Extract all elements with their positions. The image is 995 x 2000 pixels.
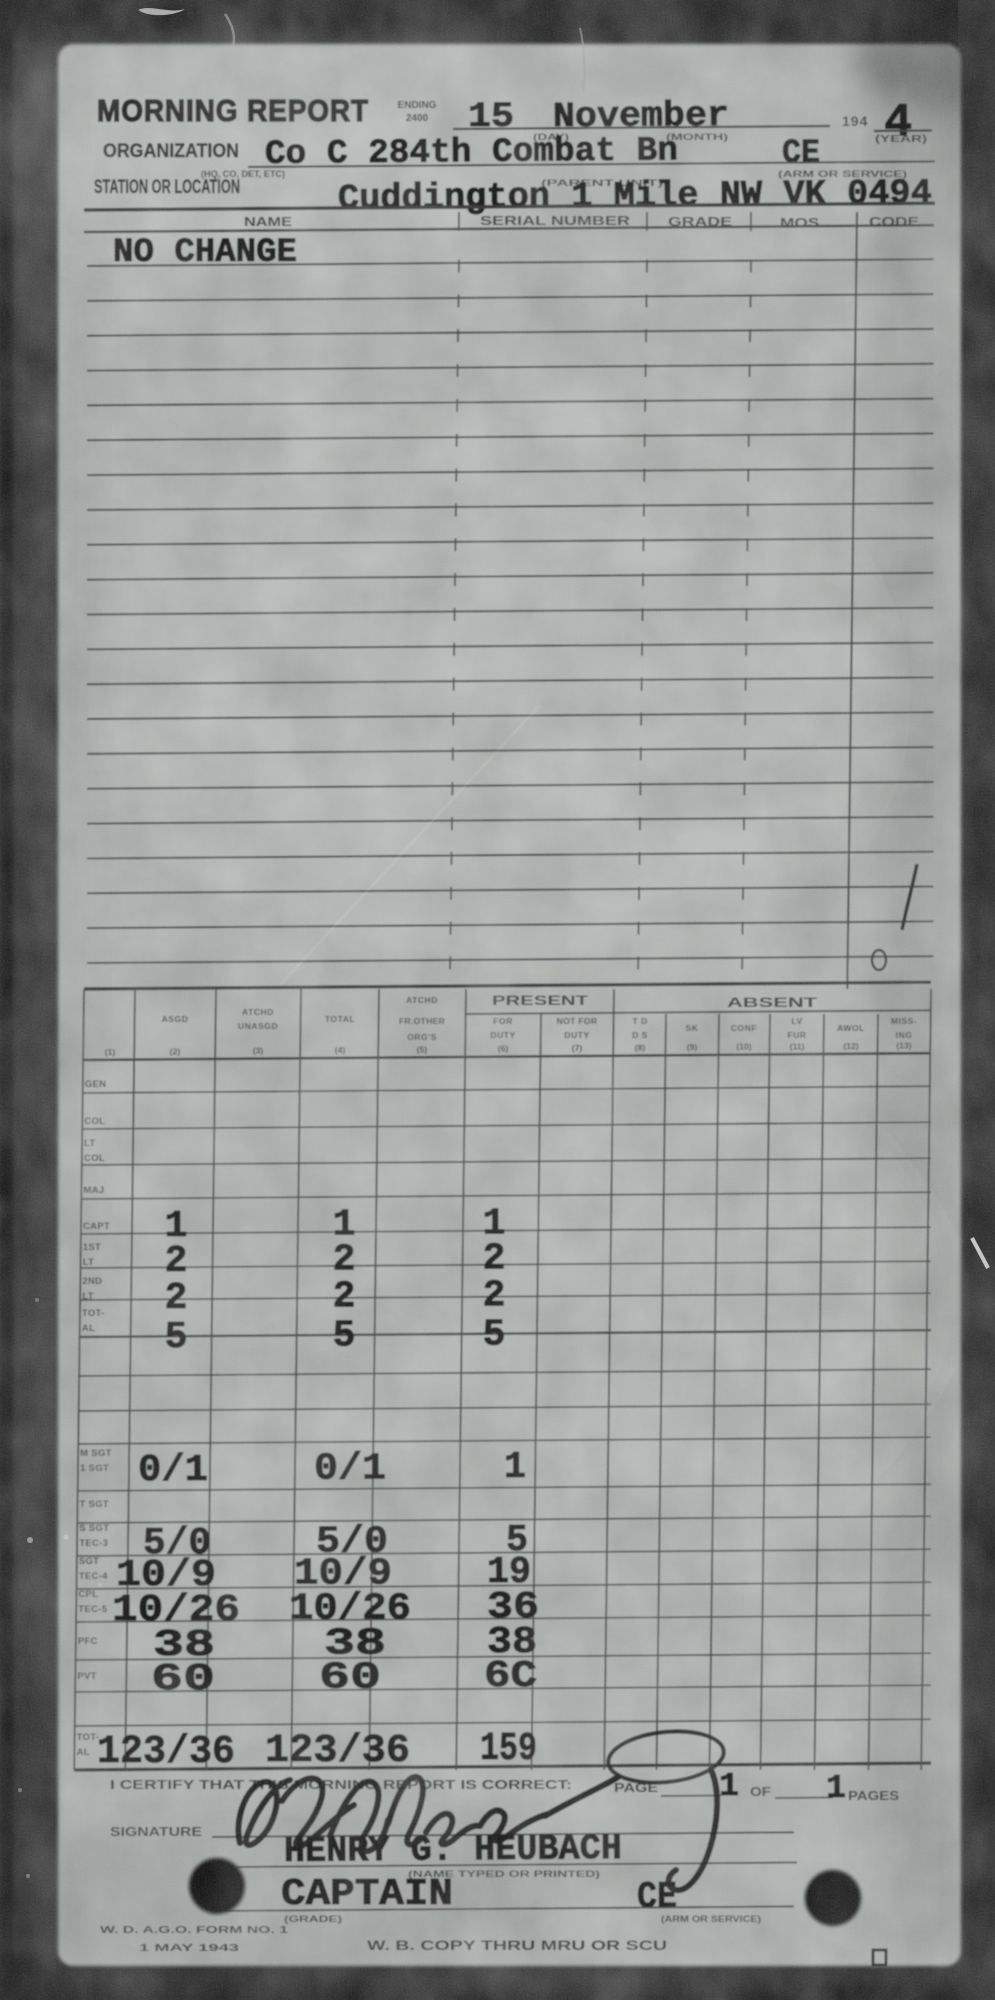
svg-text:2ND: 2ND [82, 1276, 102, 1287]
svg-text:W. B. COPY THRU MRU OR SCU: W. B. COPY THRU MRU OR SCU [367, 1937, 667, 1953]
svg-text:1 SGT: 1 SGT [80, 1463, 109, 1474]
svg-text:TOTAL: TOTAL [325, 1014, 355, 1024]
svg-text:SIGNATURE: SIGNATURE [110, 1824, 202, 1839]
svg-text:S SGT: S SGT [79, 1523, 109, 1534]
svg-text:FR.OTHER: FR.OTHER [399, 1016, 446, 1026]
svg-text:SK: SK [686, 1023, 699, 1033]
svg-text:Co C 284th Combat Bn: Co C 284th Combat Bn [265, 132, 678, 174]
svg-text:NOT FOR: NOT FOR [557, 1016, 598, 1026]
svg-text:MISS-: MISS- [891, 1016, 917, 1026]
svg-text:PAGES: PAGES [848, 1789, 899, 1803]
svg-text:0/1: 0/1 [138, 1449, 208, 1492]
svg-text:60: 60 [319, 1656, 381, 1699]
svg-text:TEC-3: TEC-3 [79, 1538, 108, 1549]
svg-text:(11): (11) [790, 1041, 805, 1051]
svg-text:ATCHD: ATCHD [406, 995, 438, 1005]
svg-text:GEN: GEN [85, 1079, 107, 1090]
svg-text:5: 5 [483, 1313, 506, 1356]
svg-text:TOT-: TOT- [77, 1732, 100, 1743]
svg-text:(7): (7) [572, 1043, 583, 1053]
svg-text:TEC-5: TEC-5 [78, 1604, 107, 1615]
svg-text:ASGD: ASGD [162, 1014, 189, 1024]
svg-text:0/1: 0/1 [314, 1448, 386, 1491]
svg-text:D S: D S [632, 1030, 648, 1040]
svg-text:(YEAR): (YEAR) [875, 134, 927, 145]
svg-text:PVT: PVT [77, 1671, 96, 1682]
svg-text:I CERTIFY THAT THIS MORNING RE: I CERTIFY THAT THIS MORNING REPORT IS CO… [110, 1777, 572, 1792]
svg-text:ATCHD: ATCHD [242, 1007, 274, 1017]
svg-text:STATION OR LOCATION: STATION OR LOCATION [94, 177, 240, 198]
svg-text:Cuddington 1 Mile NW VK 0494: Cuddington 1 Mile NW VK 0494 [338, 173, 932, 219]
svg-text:CE: CE [782, 135, 820, 173]
svg-text:November: November [553, 96, 729, 137]
svg-text:TOT-: TOT- [82, 1308, 105, 1319]
svg-text:TEC-4: TEC-4 [79, 1571, 108, 1582]
svg-text:PFC: PFC [78, 1636, 98, 1647]
svg-text:123/36: 123/36 [265, 1729, 410, 1774]
svg-text:T D: T D [632, 1016, 647, 1026]
svg-text:UNASGD: UNASGD [238, 1021, 278, 1031]
svg-text:(10): (10) [736, 1042, 751, 1052]
svg-text:NAME: NAME [244, 214, 292, 229]
svg-text:T SGT: T SGT [80, 1499, 109, 1510]
svg-text:159: 159 [480, 1727, 537, 1772]
svg-text:(1): (1) [105, 1047, 116, 1057]
svg-text:LT: LT [82, 1291, 94, 1302]
svg-text:6C: 6C [484, 1655, 537, 1698]
svg-text:FOR: FOR [493, 1016, 513, 1026]
svg-text:CONF: CONF [731, 1023, 757, 1033]
svg-text:DUTY: DUTY [490, 1030, 515, 1040]
svg-text:5: 5 [165, 1316, 188, 1359]
svg-text:MAJ: MAJ [83, 1185, 104, 1196]
svg-text:(GRADE): (GRADE) [284, 1914, 342, 1925]
svg-text:(9): (9) [687, 1042, 698, 1052]
svg-text:123/36: 123/36 [97, 1730, 235, 1775]
svg-text:60: 60 [151, 1658, 215, 1701]
svg-text:ING: ING [896, 1030, 913, 1040]
svg-text:AL: AL [77, 1747, 90, 1758]
svg-text:194: 194 [842, 113, 868, 129]
svg-text:(13): (13) [896, 1040, 911, 1050]
svg-text:MOS.: MOS. [780, 215, 824, 230]
svg-text:15: 15 [468, 97, 514, 137]
svg-text:SGT: SGT [79, 1556, 99, 1567]
svg-text:ORG'S: ORG'S [407, 1032, 437, 1042]
svg-text:COL: COL [84, 1153, 105, 1164]
svg-text:2400: 2400 [406, 113, 429, 124]
svg-text:FUR: FUR [787, 1030, 806, 1040]
svg-text:5: 5 [333, 1315, 356, 1358]
svg-text:1: 1 [719, 1768, 739, 1805]
svg-text:OF: OF [750, 1785, 771, 1799]
svg-text:CAPT: CAPT [83, 1221, 110, 1232]
svg-text:(12): (12) [843, 1041, 858, 1051]
svg-text:AL: AL [82, 1323, 95, 1334]
svg-text:(3): (3) [253, 1046, 264, 1056]
svg-text:M SGT: M SGT [80, 1448, 112, 1459]
svg-text:DUTY: DUTY [564, 1030, 589, 1040]
svg-text:W. D. A.G.O. FORM NO. 1: W. D. A.G.O. FORM NO. 1 [100, 1924, 288, 1936]
svg-text:1ST: 1ST [83, 1242, 101, 1253]
svg-text:2: 2 [165, 1277, 188, 1320]
svg-text:ORGANIZATION: ORGANIZATION [103, 141, 239, 162]
svg-text:1: 1 [504, 1446, 526, 1489]
svg-text:(4): (4) [335, 1045, 346, 1055]
svg-text:PRESENT: PRESENT [492, 992, 589, 1008]
svg-text:ABSENT: ABSENT [727, 994, 818, 1010]
svg-text:ENDING: ENDING [398, 100, 437, 111]
svg-text:2: 2 [483, 1274, 506, 1317]
svg-text:LV: LV [791, 1016, 802, 1026]
svg-text:SERIAL NUMBER: SERIAL NUMBER [480, 213, 631, 228]
svg-text:(6): (6) [498, 1044, 509, 1054]
svg-text:1: 1 [826, 1770, 846, 1807]
svg-text:MORNING REPORT: MORNING REPORT [97, 93, 369, 128]
svg-text:LT: LT [83, 1257, 95, 1268]
svg-text:(ARM OR SERVICE): (ARM OR SERVICE) [661, 1914, 761, 1925]
svg-text:(8): (8) [635, 1043, 646, 1053]
svg-text:(5): (5) [417, 1044, 428, 1054]
svg-text:(2): (2) [170, 1046, 181, 1056]
svg-text:CPL: CPL [78, 1589, 98, 1600]
svg-text:1 MAY 1943: 1 MAY 1943 [139, 1942, 239, 1954]
svg-text:2: 2 [333, 1276, 356, 1319]
svg-text:COL: COL [84, 1116, 105, 1127]
svg-text:AWOL: AWOL [837, 1023, 865, 1033]
svg-text:LT: LT [84, 1138, 96, 1149]
